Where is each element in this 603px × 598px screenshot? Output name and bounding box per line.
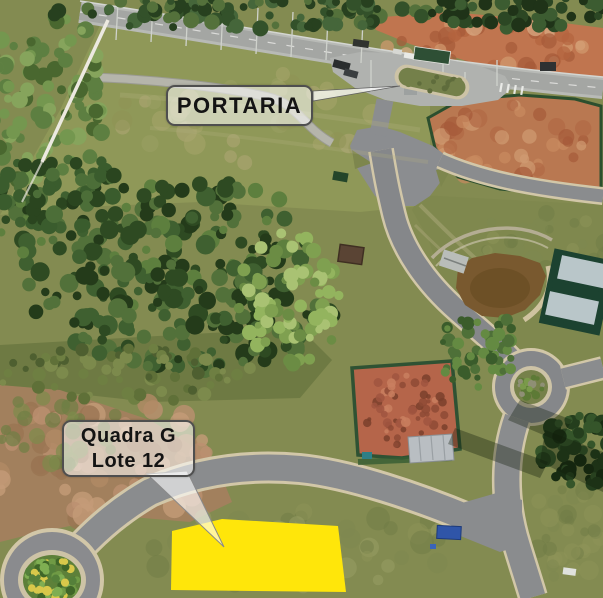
truck (540, 62, 556, 71)
portaria-label: PORTARIA (166, 85, 313, 126)
lot-label-line1: Quadra G (64, 424, 193, 449)
lot-label: Quadra G Lote 12 (62, 420, 195, 477)
lot-label-line2: Lote 12 (64, 449, 193, 474)
portaria-label-text: PORTARIA (168, 93, 311, 119)
highlighted-lot-quadra-g-lote-12 (171, 519, 346, 592)
utility-building (338, 244, 364, 264)
blue-tarp (362, 452, 372, 459)
aerial-site-photo: PORTARIA Quadra G Lote 12 (0, 0, 603, 598)
blue-container (437, 525, 462, 539)
